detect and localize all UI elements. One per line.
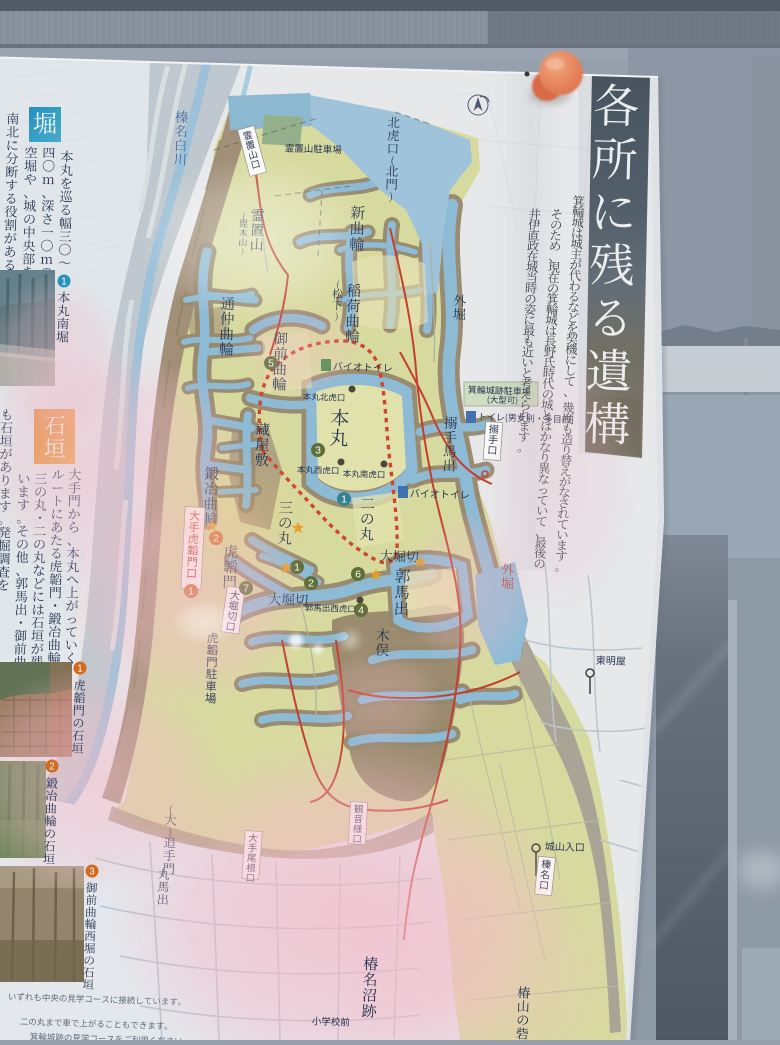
svg-text:1: 1 [61,276,66,287]
svg-text:2: 2 [49,761,54,772]
svg-text:3: 3 [89,866,94,877]
svg-text:1: 1 [77,663,82,674]
